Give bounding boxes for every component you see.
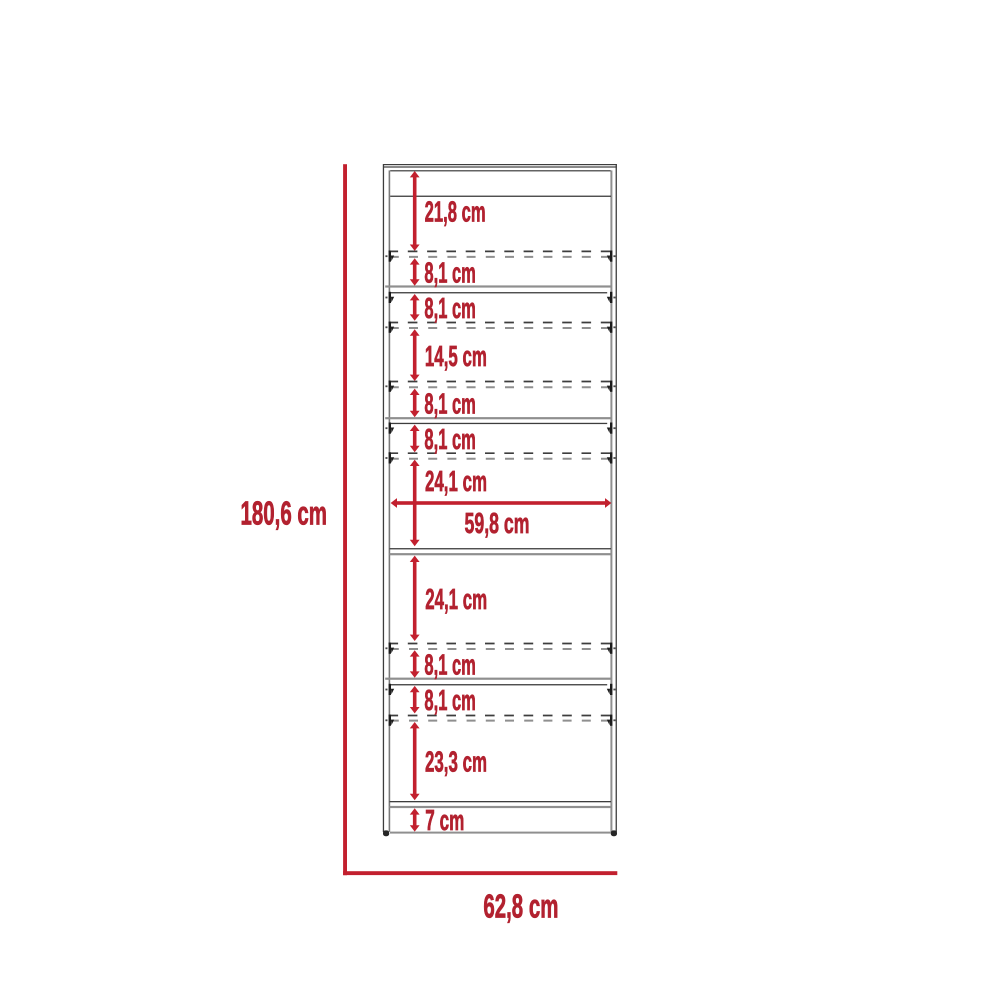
svg-text:7 cm: 7 cm: [425, 805, 464, 837]
svg-text:62,8 cm: 62,8 cm: [483, 888, 558, 925]
svg-text:14,5 cm: 14,5 cm: [425, 341, 487, 373]
svg-text:8,1 cm: 8,1 cm: [424, 293, 476, 325]
svg-text:24,1 cm: 24,1 cm: [425, 584, 487, 616]
svg-text:21,8 cm: 21,8 cm: [425, 196, 486, 228]
svg-text:8,1 cm: 8,1 cm: [424, 388, 476, 420]
svg-text:23,3 cm: 23,3 cm: [425, 747, 487, 779]
svg-text:180,6 cm: 180,6 cm: [241, 494, 328, 531]
svg-text:8,1 cm: 8,1 cm: [424, 685, 476, 717]
svg-text:59,8 cm: 59,8 cm: [465, 508, 530, 540]
svg-text:8,1 cm: 8,1 cm: [424, 650, 476, 682]
svg-text:8,1 cm: 8,1 cm: [424, 424, 476, 456]
svg-text:24,1 cm: 24,1 cm: [425, 466, 487, 498]
svg-text:8,1 cm: 8,1 cm: [424, 257, 476, 289]
